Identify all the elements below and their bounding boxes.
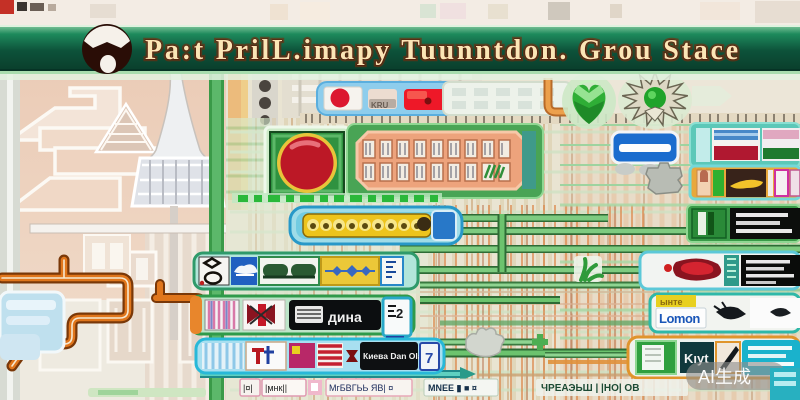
svg-text:ЧРЕАЭЬШ | |НО| ОВ: ЧРЕАЭЬШ | |НО| ОВ [541, 383, 639, 394]
svg-text:Киева Dan Olas: Киева Dan Olas [363, 351, 427, 361]
svg-text:дина: дина [328, 309, 362, 325]
svg-text:MNEE ▮ ■ ¤: MNEE ▮ ■ ¤ [428, 383, 477, 393]
svg-text:|ϻнк||: |ϻнк|| [265, 383, 287, 393]
svg-text:KRU: KRU [371, 101, 389, 110]
svg-text:2: 2 [396, 306, 403, 321]
svg-text:AI生成: AI生成 [698, 367, 751, 387]
svg-text:|¤|: |¤| [243, 383, 253, 393]
svg-text:ынте: ынте [660, 297, 683, 307]
svg-text:7: 7 [425, 350, 433, 367]
svg-text:МгБВГЬЬ ЯВ| ¤: МгБВГЬЬ ЯВ| ¤ [329, 383, 393, 393]
svg-text:Lomon: Lomon [659, 311, 700, 326]
svg-text:Pa:t PrilL.imapy Tuunntdon. Gr: Pa:t PrilL.imapy Tuunntdon. Grou Stace [145, 35, 741, 66]
